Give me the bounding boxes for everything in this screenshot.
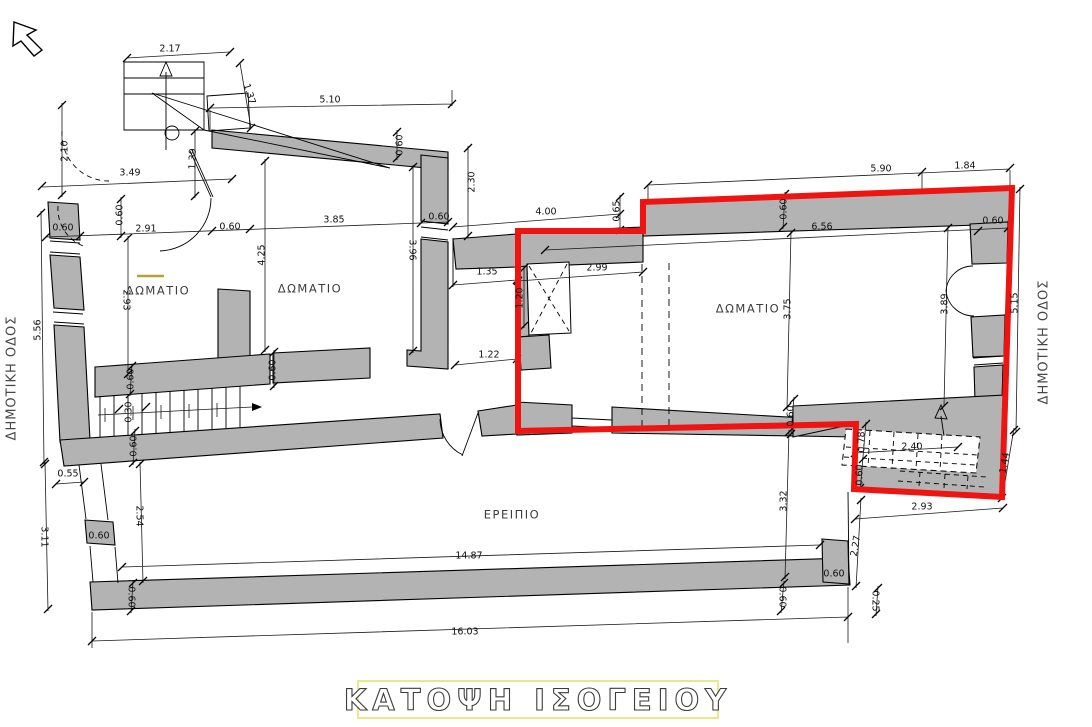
dim-label: 4.00	[535, 207, 556, 218]
floor-plan-svg: 2.17 1.37 5.10 0.60 2.30 2.10 3.49 1.39 …	[0, 0, 1092, 727]
dim-label: 0.60	[129, 435, 140, 456]
dim-label: 0.60	[126, 368, 137, 389]
dim-label: 3.75	[783, 298, 794, 319]
wall-west-seg-b	[50, 255, 84, 310]
dim-label: 0.60	[115, 204, 126, 225]
dim-label: 0.60	[428, 212, 449, 223]
dim-label: 2.10	[60, 140, 71, 161]
dim-label: 0.25	[870, 590, 881, 611]
dim-label: 2.30	[467, 171, 478, 192]
dim-label: 0.60	[982, 216, 1003, 227]
dim-label: 0.60	[855, 464, 866, 485]
dim-label: 0.65	[612, 200, 623, 221]
dim-label: 6.56	[811, 222, 832, 233]
wall-stair-corridor-south-east	[478, 405, 517, 436]
dim-label: 2.40	[901, 442, 922, 453]
dim-label: 0.55	[57, 469, 78, 480]
dim-label: 1.20	[515, 287, 526, 308]
wall-red-unit-east-2	[971, 315, 1005, 357]
dim-label: 4.25	[257, 244, 268, 265]
dim-label: 5.10	[319, 95, 340, 106]
dim-label: 16.03	[451, 627, 478, 638]
dim-label: 0.30	[124, 401, 135, 422]
shaft-box	[527, 262, 571, 335]
dim-label: 0.60	[88, 531, 109, 542]
dim-label: 3.96	[407, 239, 418, 260]
dim-label: 0.60	[268, 359, 279, 380]
street-label-left: ΔΗΜΟΤΙΚΗ ΟΔΟΣ	[5, 316, 20, 441]
dim-label: 1.37	[241, 82, 258, 106]
dim-label: 0.60	[786, 405, 797, 426]
dim-label: 3.32	[779, 490, 790, 511]
room-label-domatio-1: ΔΩΜΑΤΙΟ	[126, 284, 190, 298]
door-corridor-leaf	[462, 413, 478, 456]
wall-west-seg-c	[54, 325, 90, 442]
floor-plan-canvas: 2.17 1.37 5.10 0.60 2.30 2.10 3.49 1.39 …	[0, 0, 1092, 727]
dim-label: 1.39	[187, 148, 199, 170]
dim-label: 2.54	[134, 505, 145, 526]
room-label-domatio-3: ΔΩΜΑΤΙΟ	[716, 302, 780, 316]
overhead-dashed-lines	[642, 263, 669, 430]
room-label-ereipio: ΕΡΕΙΠΙΟ	[484, 508, 540, 522]
dim-label: 3.11	[39, 526, 50, 547]
dim-label: 5.56	[33, 319, 44, 340]
wall-left-building-top	[212, 130, 448, 170]
dim-label: 2.99	[586, 263, 607, 274]
dim-label: 14.87	[455, 551, 482, 562]
wall-west-seg-a	[48, 202, 80, 240]
dim-label: 3.85	[323, 215, 344, 226]
dim-label: 2.91	[135, 224, 156, 235]
dim-label: 2.17	[159, 44, 180, 55]
dim-label: 0.60	[219, 222, 240, 233]
wall-under-rooms-left	[95, 354, 270, 397]
dim-label: 0.60	[395, 134, 406, 155]
plan-title: ΚΑΤΟΨΗ ΙΣΟΓΕΙΟΥ	[344, 683, 732, 717]
dim-label: 0.60	[823, 569, 844, 580]
stair-arrowhead-west	[252, 403, 262, 411]
dim-label: 1.84	[954, 161, 975, 172]
dim-label: 3.89	[940, 293, 951, 314]
pier-below-shaft	[519, 335, 551, 370]
dim-label: 1.22	[478, 350, 499, 361]
dim-label: 0.60	[777, 586, 788, 607]
wall-corridor-band	[453, 234, 517, 269]
door-east-double-arc-top	[946, 266, 973, 291]
dim-label: 5.90	[870, 164, 891, 175]
dim-label: 2.27	[849, 535, 864, 558]
dim-label: 1.35	[476, 267, 497, 278]
dim-label: 0.60	[779, 198, 790, 219]
stair-node-circle	[165, 126, 179, 140]
room-label-domatio-2: ΔΩΜΑΤΙΟ	[278, 282, 342, 296]
wall-stair-corridor-south	[60, 414, 443, 466]
dim-label: 1.44	[998, 452, 1013, 475]
wall-under-rooms-right	[273, 348, 370, 383]
street-label-right: ΔΗΜΟΤΙΚΗ ΟΔΟΣ	[1037, 280, 1052, 405]
north-arrow-icon	[13, 22, 42, 56]
walls-layer	[48, 130, 1012, 610]
wall-south-long	[90, 558, 850, 610]
dim-label: 3.49	[119, 168, 140, 179]
dim-label: 0.60	[126, 586, 137, 607]
door-corridor-arc	[440, 419, 463, 455]
dim-label: 0.60	[52, 223, 73, 234]
title-block: ΚΑΤΟΨΗ ΙΣΟΓΕΙΟΥ	[344, 681, 732, 718]
door-left-room-arc	[160, 198, 211, 251]
wall-interior-stub	[218, 289, 250, 360]
dim-label: 5.15	[1010, 292, 1021, 313]
dim-label: 2.93	[911, 502, 932, 513]
dim-label: 0.78	[857, 431, 868, 452]
